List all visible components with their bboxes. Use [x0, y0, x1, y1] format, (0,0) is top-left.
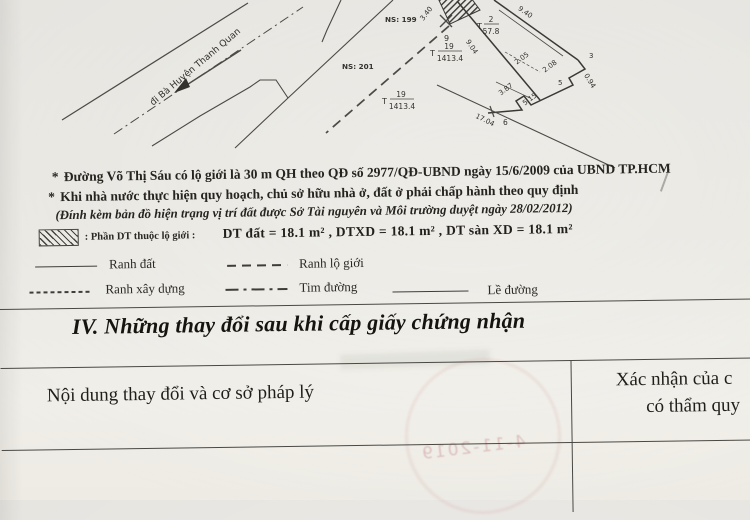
legend-line-le-duong [393, 290, 469, 292]
table-header-confirmation-line2: có thẩm quy [646, 395, 740, 418]
legend-label-le-duong: Lề đường [487, 281, 538, 298]
photographed-land-certificate-page: { "drawing": { "road_label": "đi Bà Huyệ… [0, 0, 750, 500]
legend-line-ranh-dat [35, 266, 97, 268]
table-header-confirmation-line1: Xác nhận của c [616, 368, 733, 392]
bullet-marker: * [52, 169, 64, 185]
note-attached-map: (Đính kèm bản đồ hiện trạng vị trí đất đ… [55, 201, 572, 223]
legend-line-tim-duong [225, 288, 287, 291]
heading-top-rule [0, 298, 750, 310]
table-top-border [1, 357, 750, 369]
hatch-legend-swatch [39, 229, 79, 247]
hatch-legend-areas: DT đất = 18.1 m² , DTXD = 18.1 m² , DT s… [223, 221, 573, 242]
legend-label-ranh-dat: Ranh đất [109, 256, 156, 273]
bullet-marker: * [48, 189, 60, 205]
legend-line-ranh-lo-gioi [227, 264, 287, 267]
table-header-content: Nội dung thay đổi và cơ sở pháp lý [47, 382, 314, 408]
legend-label-ranh-lo-gioi: Ranh lộ giới [299, 255, 364, 272]
table-header-underline [2, 439, 750, 451]
table-column-divider [570, 360, 574, 512]
document-lower-section: *Đường Võ Thị Sáu có lộ giới là 30 m QH … [0, 0, 750, 520]
hatch-legend-label: : Phần DT thuộc lộ giới : [85, 230, 196, 243]
legend-label-ranh-xay-dung: Ranh xây dựng [105, 280, 184, 297]
legend-line-ranh-xay-dung [29, 291, 91, 293]
section-iv-heading: IV. Những thay đổi sau khi cấp giấy chứn… [72, 308, 526, 340]
legend-label-tim-duong: Tim đường [299, 279, 357, 296]
